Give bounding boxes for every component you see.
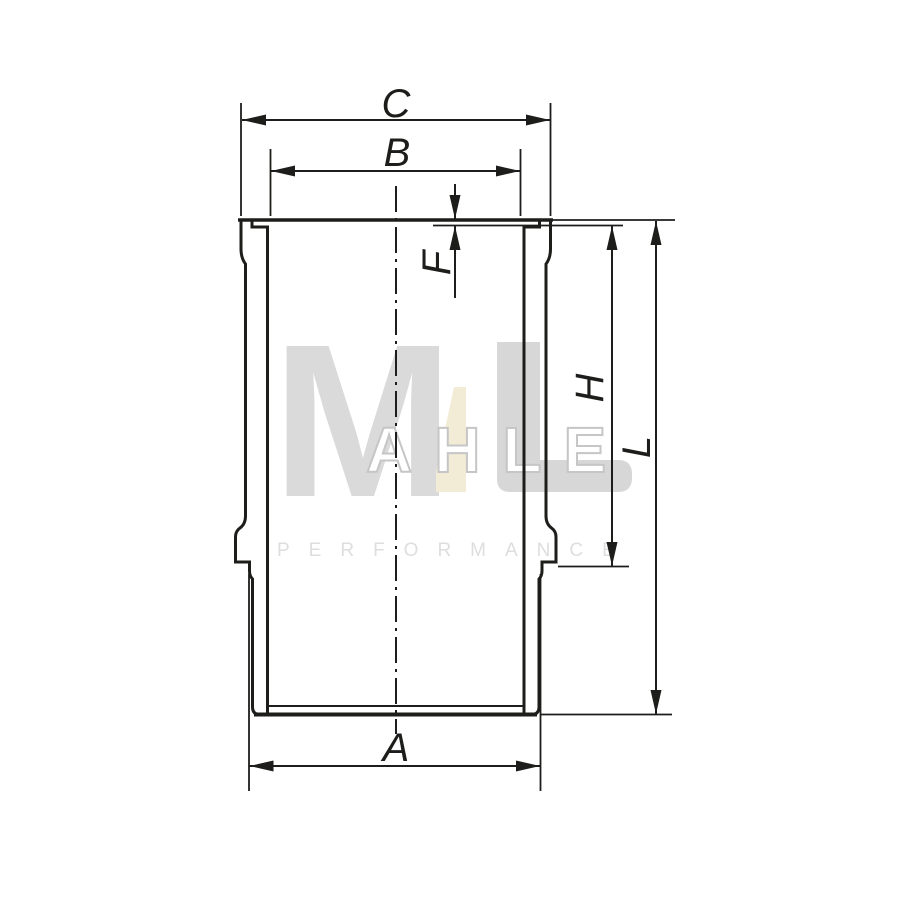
dim-h-label: H: [568, 373, 612, 402]
dim-a-label: A: [381, 726, 410, 770]
dim-c-label: C: [382, 82, 412, 126]
dim-l-label: L: [615, 436, 659, 458]
dim-f-label: F: [415, 248, 459, 275]
cylinder-liner-technical-drawing: M AHLE PERFORMANCE C B: [0, 0, 900, 900]
watermark-outline-letters: AHLE: [366, 414, 628, 486]
watermark-tagline: PERFORMANCE: [277, 540, 634, 561]
dim-b-label: B: [384, 131, 411, 175]
